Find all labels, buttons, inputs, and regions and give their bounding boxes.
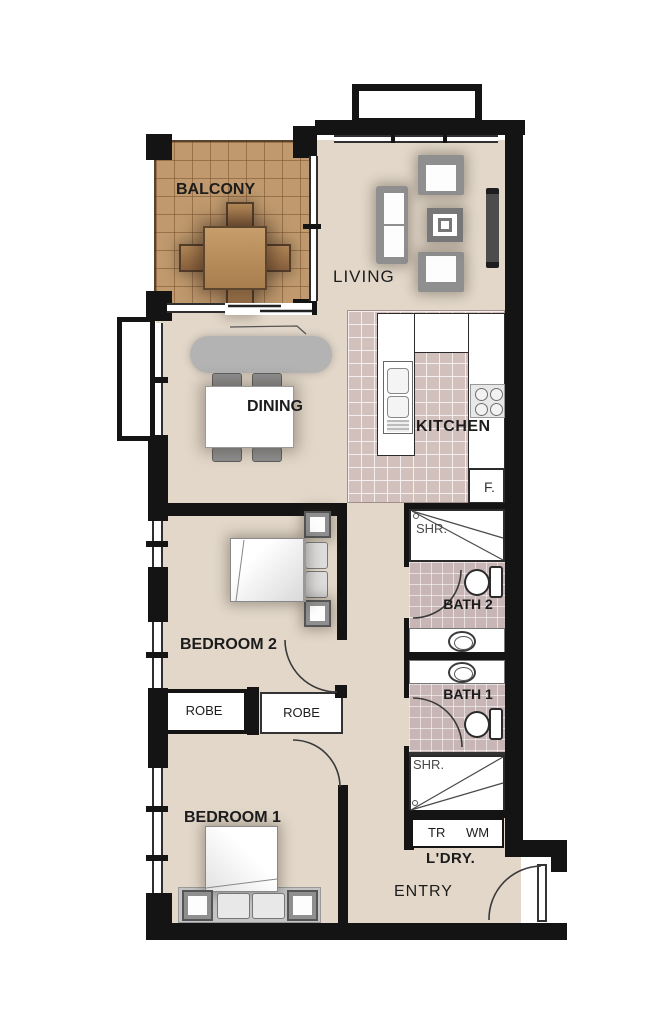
- planter-box: [117, 317, 155, 441]
- nightstand: [182, 890, 213, 921]
- armchair-cushion: [426, 165, 456, 191]
- shower1-label: SHR.: [413, 758, 444, 771]
- balcony-chair: [179, 244, 205, 272]
- nightstand-top: [310, 606, 325, 621]
- shower2-label: SHR.: [416, 522, 447, 535]
- sofa-cushion: [384, 193, 404, 224]
- bedroom2-label: BEDROOM 2: [180, 637, 277, 653]
- window-mullion: [146, 806, 168, 812]
- bed-mattress: [230, 538, 306, 602]
- coffee-table-core: [441, 221, 449, 229]
- nightstand-top: [293, 896, 312, 915]
- balcony-table: [203, 226, 267, 290]
- laundry-label: L'DRY.: [426, 851, 475, 866]
- burner-icon: [490, 388, 503, 401]
- nightstand: [287, 890, 318, 921]
- bed-pillow: [252, 893, 285, 919]
- shower-drain: [412, 800, 418, 806]
- washer-label: WM: [466, 826, 489, 839]
- window-mullion: [146, 855, 168, 861]
- wall: [335, 685, 347, 698]
- window: [152, 768, 163, 893]
- fridge-label: F.: [484, 480, 495, 494]
- wall: [337, 503, 347, 640]
- toilet-tank: [489, 566, 503, 598]
- balcony-chair: [226, 202, 254, 228]
- wall: [247, 687, 259, 735]
- dining-sofa: [190, 336, 332, 373]
- dryer-label: TR: [428, 826, 445, 839]
- window-mullion: [146, 652, 168, 658]
- wall: [315, 120, 525, 135]
- sink-basin: [387, 396, 409, 418]
- basin-bowl: [454, 636, 473, 650]
- bath1-label: BATH 1: [430, 687, 506, 701]
- robe-left-label: ROBE: [160, 704, 248, 717]
- wall: [551, 855, 567, 872]
- wall: [293, 126, 317, 158]
- sliding-door: [225, 303, 312, 315]
- bed-pillow: [305, 542, 328, 569]
- bed-mattress: [205, 826, 278, 892]
- roof-feature: [352, 84, 482, 125]
- wall: [146, 923, 567, 940]
- nightstand-top: [188, 896, 207, 915]
- window-mullion: [146, 541, 168, 547]
- wall: [404, 810, 505, 818]
- burner-icon: [475, 388, 488, 401]
- toilet: [464, 569, 490, 596]
- basin: [448, 631, 476, 652]
- window-mullion: [443, 131, 447, 143]
- kitchen-sink: [383, 361, 413, 434]
- living-sofa: [376, 186, 408, 264]
- kitchen-label: KITCHEN: [416, 419, 491, 435]
- tv-unit: [486, 188, 499, 268]
- bath2-label: BATH 2: [430, 597, 506, 611]
- floor-plan: BALCONY LIVING DINING KITCHEN F. BEDROOM…: [0, 0, 662, 1023]
- sink-drainboard: [387, 420, 409, 432]
- window-mullion: [391, 131, 395, 143]
- burner-icon: [475, 403, 488, 416]
- sofa-cushion: [384, 226, 404, 257]
- robe-right-label: ROBE: [260, 706, 343, 719]
- living-label: LIVING: [333, 268, 395, 285]
- wall: [148, 435, 168, 521]
- shower-drain: [413, 513, 419, 519]
- basin-bowl: [454, 667, 473, 681]
- sink-basin: [387, 368, 409, 394]
- toilet-tank: [489, 708, 503, 740]
- nightstand: [304, 511, 331, 538]
- nightstand-top: [310, 517, 325, 532]
- basin: [448, 662, 476, 683]
- wall: [146, 893, 172, 940]
- wall: [146, 134, 172, 160]
- entry-door-leaf: [537, 864, 547, 922]
- window: [167, 303, 225, 313]
- bed-pillow: [217, 893, 250, 919]
- living-armchair: [418, 252, 464, 292]
- dining-chair: [212, 447, 242, 462]
- dining-chair: [252, 447, 282, 462]
- wall: [505, 120, 523, 842]
- bedroom1-label: BEDROOM 1: [184, 810, 281, 826]
- window: [334, 135, 498, 143]
- nightstand: [304, 600, 331, 627]
- wall: [338, 785, 348, 925]
- living-coffee-table: [427, 208, 463, 242]
- bed-pillow: [305, 571, 328, 598]
- cooktop: [470, 384, 505, 418]
- dining-label: DINING: [247, 399, 303, 415]
- toilet: [464, 711, 490, 738]
- laundry-cupboard: [411, 818, 504, 848]
- armchair-cushion: [426, 256, 456, 282]
- burner-icon: [490, 403, 503, 416]
- balcony-label: BALCONY: [176, 182, 255, 198]
- living-armchair: [418, 155, 464, 195]
- dining-table: [205, 386, 294, 448]
- wall: [148, 567, 168, 622]
- balcony-chair: [265, 244, 291, 272]
- entry-label: ENTRY: [394, 884, 453, 900]
- window-mullion: [303, 224, 321, 229]
- wall: [148, 688, 168, 768]
